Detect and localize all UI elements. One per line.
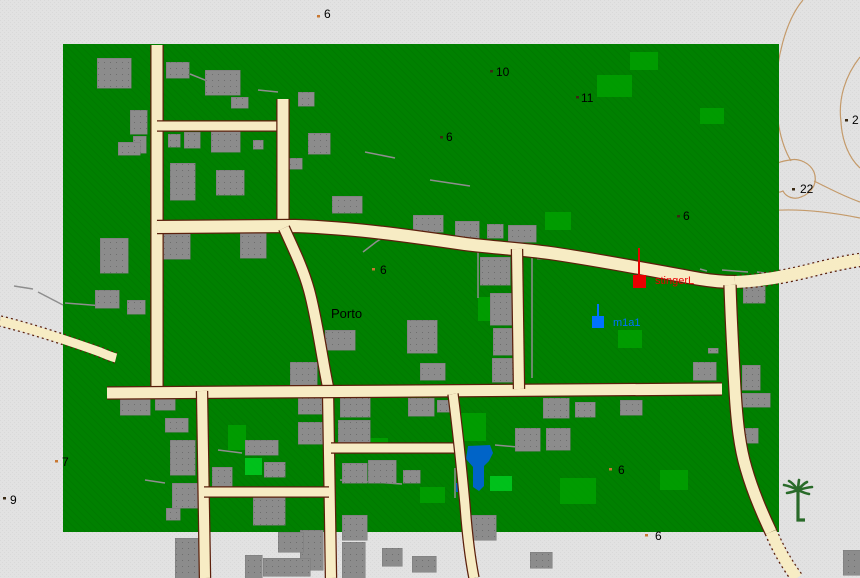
building bbox=[407, 320, 437, 353]
spot-height-label: 6 bbox=[683, 209, 690, 223]
road-vertical-sw bbox=[202, 391, 205, 578]
building bbox=[480, 257, 510, 285]
vegetation-patch bbox=[245, 458, 262, 475]
road-vertical-sw-surface bbox=[202, 391, 205, 578]
building bbox=[338, 420, 370, 443]
building bbox=[130, 110, 147, 134]
building bbox=[216, 170, 244, 195]
building bbox=[708, 348, 718, 353]
label-dot bbox=[677, 215, 680, 218]
spot-height-label: 6 bbox=[618, 463, 625, 477]
building bbox=[413, 215, 443, 232]
building bbox=[487, 224, 503, 238]
label-dot bbox=[792, 188, 795, 191]
building bbox=[420, 363, 445, 380]
building bbox=[620, 400, 642, 415]
building bbox=[546, 428, 570, 450]
building bbox=[127, 300, 145, 314]
unit-label: stingerL bbox=[655, 275, 694, 287]
building bbox=[340, 397, 370, 417]
vegetation-patch bbox=[560, 478, 596, 504]
label-dot bbox=[440, 136, 443, 139]
building bbox=[231, 97, 248, 108]
building bbox=[408, 398, 434, 416]
building bbox=[742, 365, 760, 390]
vegetation-patch bbox=[700, 108, 724, 124]
road-vertical-center-south bbox=[328, 390, 331, 578]
unit-square-icon[interactable] bbox=[633, 275, 646, 288]
label-dot bbox=[55, 460, 58, 463]
building bbox=[575, 402, 595, 417]
building bbox=[172, 483, 198, 508]
map-canvas[interactable]: 61011666Porto2227966stingerLm1a1 bbox=[0, 0, 860, 578]
building bbox=[263, 558, 310, 576]
building bbox=[342, 515, 367, 540]
vegetation-patch bbox=[597, 75, 632, 97]
building bbox=[403, 470, 420, 483]
label-dot bbox=[645, 534, 648, 537]
spot-height-label: 22 bbox=[800, 182, 814, 196]
vegetation-patch bbox=[545, 212, 571, 230]
spot-height-label: 6 bbox=[380, 263, 387, 277]
spot-height-label: 2 bbox=[852, 113, 859, 127]
building bbox=[508, 225, 536, 242]
building bbox=[95, 290, 119, 308]
building bbox=[843, 550, 860, 575]
building bbox=[253, 497, 285, 525]
vegetation-patch bbox=[460, 413, 486, 441]
building bbox=[288, 158, 302, 169]
map-view[interactable]: 61011666Porto2227966stingerLm1a1 bbox=[0, 0, 860, 578]
building bbox=[240, 233, 266, 258]
building bbox=[332, 196, 362, 213]
label-dot bbox=[490, 70, 493, 73]
building bbox=[693, 362, 716, 380]
building bbox=[245, 440, 278, 455]
spot-height-label: 9 bbox=[10, 493, 17, 507]
road-vertical-mid bbox=[517, 249, 519, 389]
building bbox=[325, 330, 355, 350]
building bbox=[97, 58, 131, 88]
building bbox=[264, 462, 285, 477]
building bbox=[412, 556, 436, 572]
building bbox=[165, 418, 188, 432]
building bbox=[530, 552, 552, 568]
unit-label: m1a1 bbox=[613, 317, 641, 329]
building bbox=[155, 398, 175, 410]
building bbox=[278, 532, 303, 552]
label-dot bbox=[576, 96, 579, 99]
label-dot bbox=[609, 468, 612, 471]
building bbox=[118, 142, 140, 155]
building bbox=[100, 238, 128, 273]
building bbox=[368, 460, 396, 483]
building bbox=[160, 232, 190, 259]
building bbox=[120, 398, 150, 415]
building bbox=[298, 422, 325, 444]
spot-height-label: 6 bbox=[655, 529, 662, 543]
building bbox=[382, 548, 402, 566]
vegetation-patch bbox=[630, 52, 658, 70]
spot-height-label: 7 bbox=[62, 455, 69, 469]
building bbox=[245, 555, 262, 578]
unit-square-icon[interactable] bbox=[592, 316, 604, 328]
vegetation-patch bbox=[228, 425, 246, 450]
vegetation-patch bbox=[420, 487, 445, 503]
building bbox=[543, 398, 569, 418]
building bbox=[166, 62, 189, 78]
vegetation-patch bbox=[660, 470, 688, 490]
building bbox=[298, 92, 314, 106]
building bbox=[342, 542, 365, 578]
vegetation-patch bbox=[490, 476, 512, 491]
road-vertical-mid-surface bbox=[517, 249, 519, 389]
building bbox=[205, 70, 240, 95]
building bbox=[170, 440, 195, 475]
building bbox=[170, 163, 195, 200]
road-vertical-center-south-surface bbox=[328, 390, 331, 578]
building bbox=[740, 393, 770, 407]
spot-height-label: 10 bbox=[496, 65, 510, 79]
label-dot bbox=[845, 119, 848, 122]
town-label: Porto bbox=[331, 306, 362, 321]
building bbox=[290, 362, 317, 387]
vegetation-patch bbox=[618, 330, 642, 348]
building bbox=[298, 397, 323, 414]
spot-height-label: 11 bbox=[581, 91, 594, 105]
spot-height-label: 6 bbox=[446, 130, 453, 144]
building bbox=[253, 140, 263, 149]
spot-height-label: 6 bbox=[324, 7, 331, 21]
building bbox=[168, 134, 180, 147]
label-dot bbox=[372, 268, 375, 271]
building bbox=[342, 463, 367, 483]
label-dot bbox=[317, 15, 320, 18]
building bbox=[184, 132, 200, 148]
building bbox=[308, 133, 330, 154]
building bbox=[211, 131, 240, 152]
building bbox=[166, 508, 180, 520]
building bbox=[515, 428, 540, 451]
label-dot bbox=[3, 497, 6, 500]
